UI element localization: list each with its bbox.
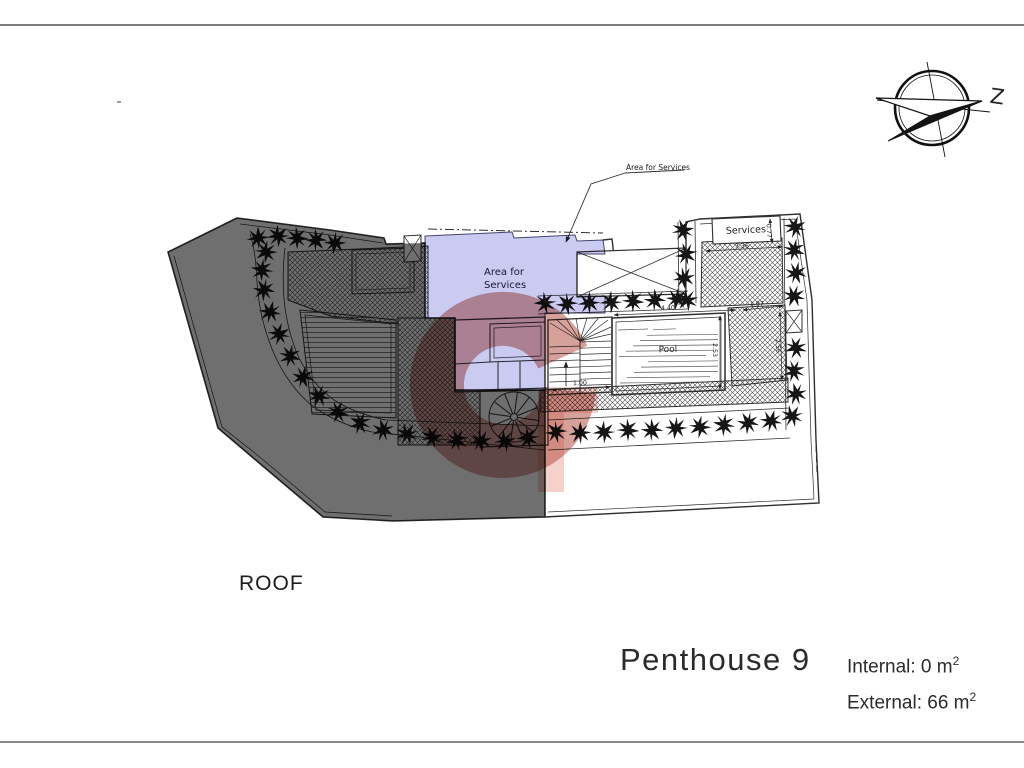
compass-north-letter: Z (988, 84, 1006, 110)
floor-label: ROOF (239, 572, 304, 596)
dim-court-width: 1.97 (750, 301, 764, 309)
drawing-sheet: Area for Services Area for Services Pool… (0, 0, 1024, 768)
services-label: Services (726, 224, 767, 237)
note-area-for-services: Area for Services (626, 163, 690, 172)
unit-name: Penthouse 9 (620, 642, 811, 678)
note-leader-line (566, 170, 684, 242)
area-statistics: Internal: 0 m2 External: 66 m2 (847, 646, 976, 719)
dash-dot-line (428, 229, 603, 233)
dim-pool-width: 4.40 (661, 305, 675, 312)
external-exponent: 2 (970, 690, 977, 704)
skylight-crossed-box (577, 248, 686, 297)
internal-exponent: 2 (953, 654, 960, 668)
external-area: External: 66 m2 (847, 682, 976, 718)
dim-services-width: 3.36 (735, 243, 749, 251)
internal-area: Internal: 0 m2 (847, 646, 976, 682)
dim-pool-height: 2.53 (711, 343, 718, 357)
pool-label: Pool (658, 345, 677, 356)
dim-services-height: 0.77 (765, 224, 773, 238)
shaft-crossed-box-right (786, 310, 802, 333)
dim-stair-width: 1.00 (573, 380, 587, 387)
dim-court-height: 2.56 (774, 339, 781, 353)
north-compass: Z (876, 62, 1006, 157)
